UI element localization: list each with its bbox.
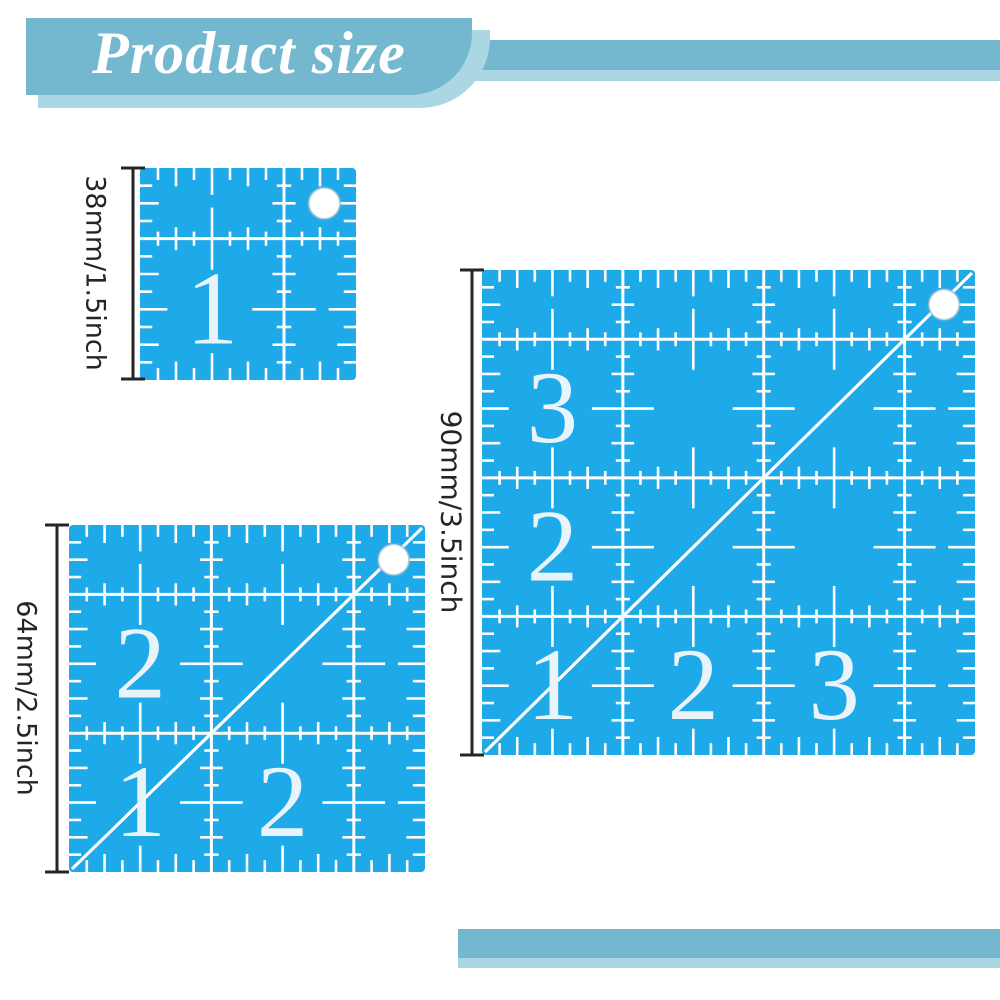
ruler-numeral: 2	[115, 606, 166, 720]
ruler-small: 1	[140, 168, 356, 380]
ruler-medium: 212	[69, 525, 425, 872]
ruler-numeral: 1	[115, 745, 166, 859]
dimension-line-medium	[45, 525, 69, 872]
product-size-figure: Product size 121232123 38mm/1.5inch 64mm…	[0, 0, 1000, 1000]
ruler-numeral: 2	[668, 629, 719, 742]
ruler-numeral: 1	[527, 629, 578, 742]
hanging-hole	[308, 187, 340, 219]
ruler-large: 32123	[482, 270, 975, 755]
ruler-numeral: 2	[527, 491, 578, 604]
ruler-numeral: 3	[527, 352, 578, 465]
hanging-hole	[929, 289, 960, 320]
dimension-label-large: 90mm/3.5inch	[435, 411, 468, 614]
rulers-scene: 121232123	[0, 0, 1000, 1000]
dimension-label-small: 38mm/1.5inch	[80, 175, 111, 371]
ruler-numeral: 1	[186, 251, 238, 367]
hanging-hole	[378, 544, 409, 575]
dimension-label-medium: 64mm/2.5inch	[11, 600, 42, 796]
ruler-numeral: 2	[257, 745, 308, 859]
ruler-numeral: 3	[809, 629, 860, 742]
